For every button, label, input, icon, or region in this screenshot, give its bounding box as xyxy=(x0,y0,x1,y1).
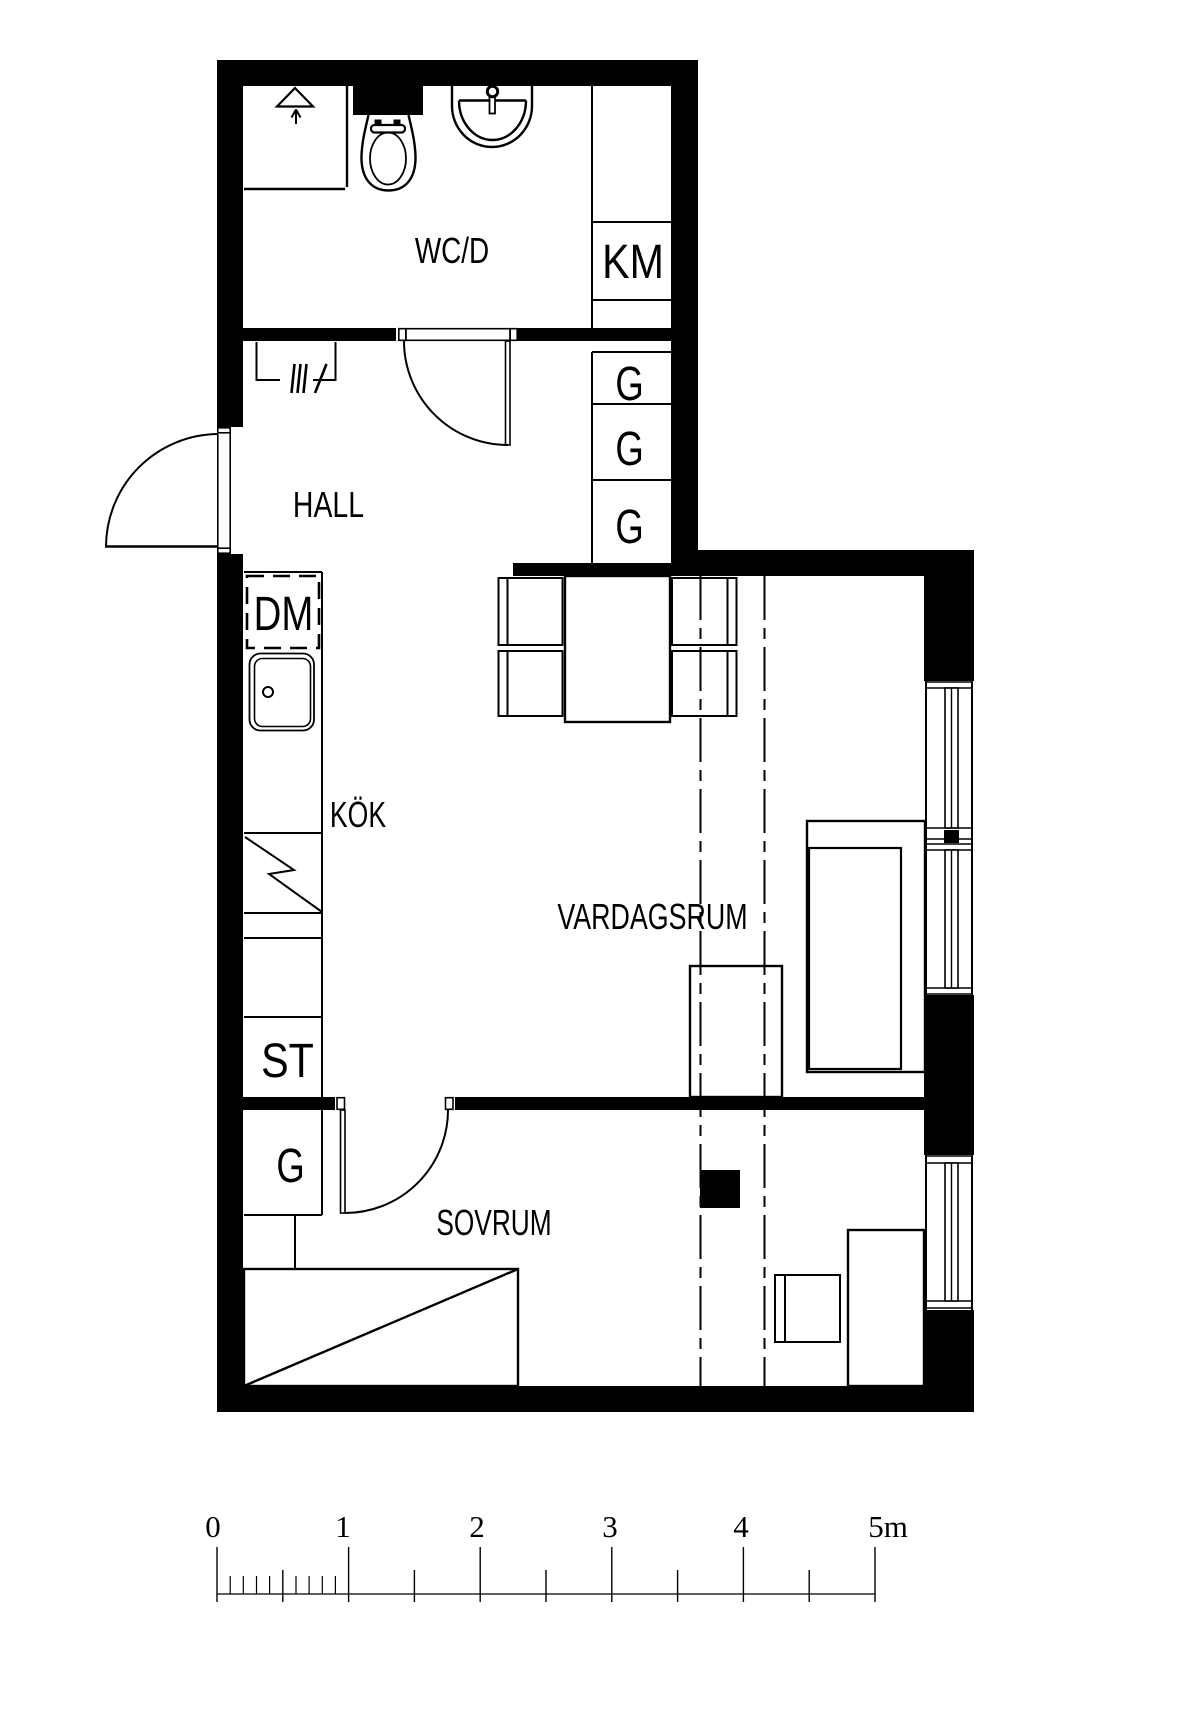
svg-text:G: G xyxy=(615,422,643,476)
svg-text:0: 0 xyxy=(205,1509,221,1544)
svg-text:G: G xyxy=(276,1139,304,1193)
svg-text:SOVRUM: SOVRUM xyxy=(436,1202,551,1243)
svg-text:5m: 5m xyxy=(868,1509,908,1544)
svg-text:KÖK: KÖK xyxy=(330,794,386,835)
svg-text:HALL: HALL xyxy=(293,485,364,525)
svg-text:WC/D: WC/D xyxy=(415,231,489,271)
svg-text:KM: KM xyxy=(602,236,664,289)
svg-text:DM: DM xyxy=(254,588,314,641)
svg-text:3: 3 xyxy=(602,1509,618,1544)
svg-text:4: 4 xyxy=(733,1509,749,1544)
svg-text:G: G xyxy=(615,500,643,554)
svg-text:VARDAGSRUM: VARDAGSRUM xyxy=(557,896,747,937)
svg-text:1: 1 xyxy=(335,1509,351,1544)
svg-text:ST: ST xyxy=(261,1034,314,1088)
svg-text:G: G xyxy=(615,357,643,411)
svg-text:2: 2 xyxy=(469,1509,485,1544)
